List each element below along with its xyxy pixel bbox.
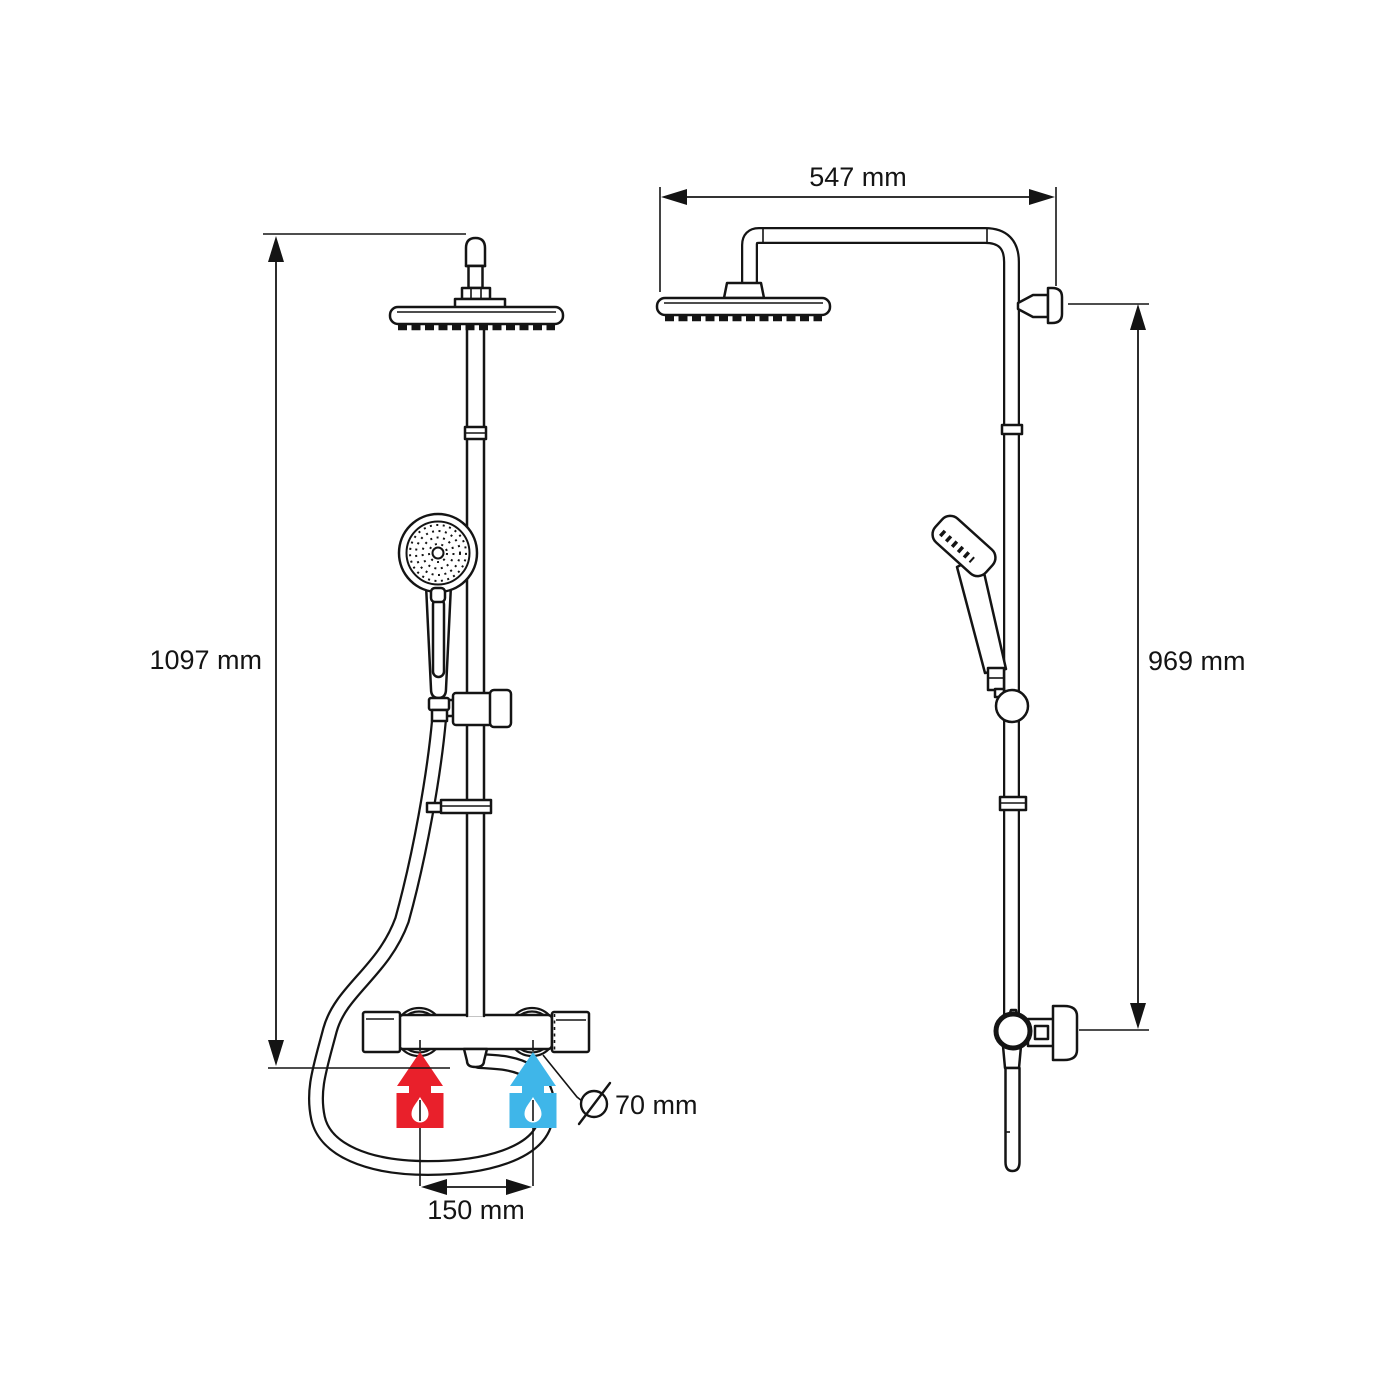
bracket-flange: [1053, 1006, 1077, 1060]
diameter-icon: [579, 1083, 610, 1124]
thermostat-mixer: [363, 1008, 589, 1067]
reach-dimension-label: 547 mm: [809, 162, 907, 192]
shower-arm-and-pipe: [750, 229, 1027, 1171]
hose-fitting: [429, 698, 449, 710]
head-mount-side: [724, 283, 764, 298]
height-dimension-969: 969 mm: [1068, 304, 1246, 1030]
mixer-knob-right: [552, 1012, 589, 1052]
rail-slider: [453, 693, 492, 725]
technical-drawing-shower-system: 1097 mm 150 mm 70 mm: [0, 0, 1400, 1400]
mixer-hose-outlet: [464, 1049, 487, 1067]
hand-shower-front: [399, 514, 511, 727]
bracket-swivel-knob: [996, 1014, 1030, 1048]
height-dimension-1097: 1097 mm: [149, 234, 466, 1068]
rail-collar-side: [1000, 797, 1026, 810]
slider-knob-side: [996, 690, 1028, 722]
mixer-body: [399, 1015, 552, 1049]
overhead-shower-front: [390, 307, 563, 327]
bracket-height-label: 969 mm: [1148, 646, 1246, 676]
hose-outlet-tube: [1006, 1068, 1020, 1171]
diameter-callout: 70 mm: [543, 1055, 698, 1124]
pipe-joint-band-side: [1002, 425, 1022, 434]
diagram-svg: 1097 mm 150 mm 70 mm: [0, 0, 1400, 1400]
pipe-top-cap: [466, 238, 485, 266]
mixer-knob-left: [363, 1012, 400, 1052]
spacing-dimension-150: 150 mm: [421, 1179, 532, 1225]
diameter-dimension-label: 70 mm: [615, 1090, 698, 1120]
front-view: 1097 mm 150 mm 70 mm: [149, 234, 697, 1225]
wall-bracket-top: [1018, 288, 1062, 323]
slider-knob: [490, 690, 511, 727]
pipe-hex-nut: [462, 288, 490, 299]
spacing-dimension-label: 150 mm: [427, 1195, 525, 1225]
height-dimension-label: 1097 mm: [149, 645, 262, 675]
overhead-shower-side: [657, 283, 830, 318]
side-view: 547 mm 969 mm: [657, 162, 1246, 1171]
hand-shower-button: [431, 588, 445, 602]
rail-collar-front: [427, 800, 491, 813]
